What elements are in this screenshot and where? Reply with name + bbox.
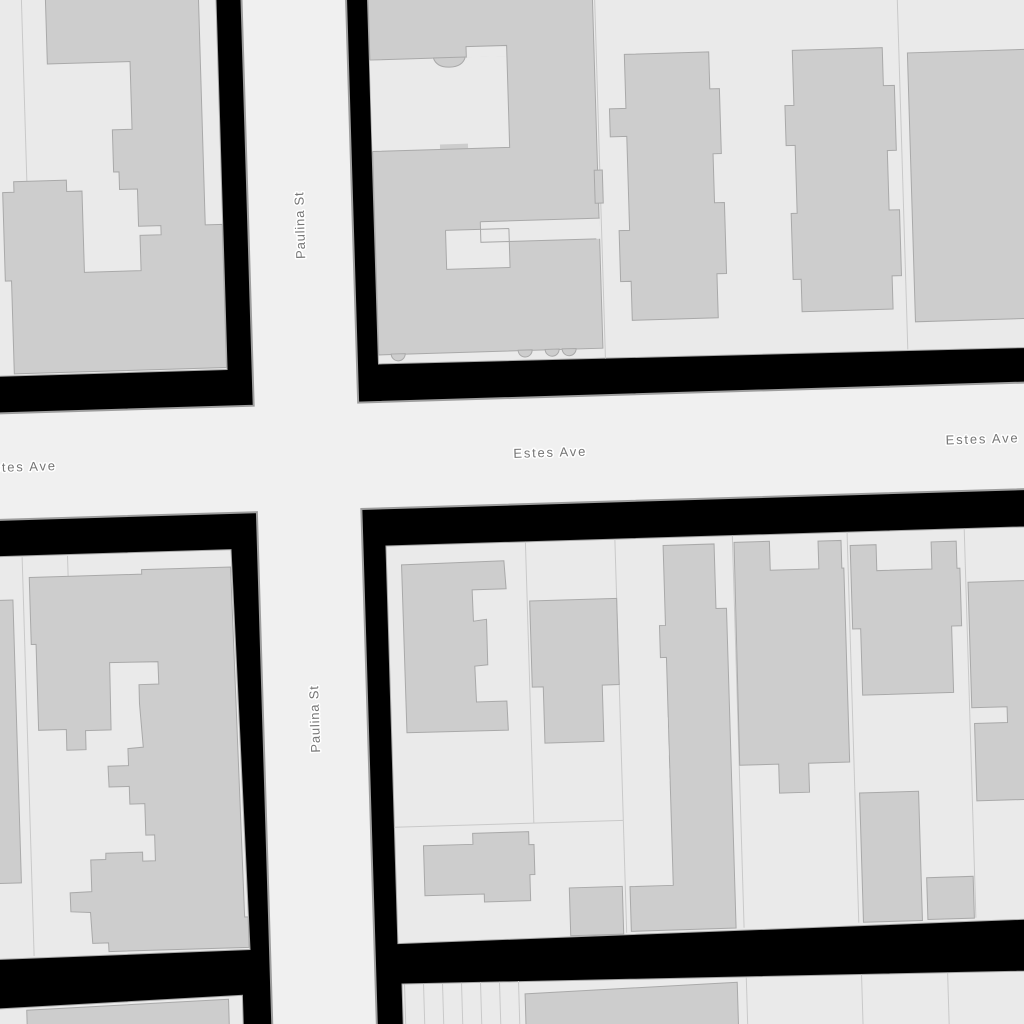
svg-text:Estes Ave: Estes Ave	[0, 458, 57, 475]
svg-text:Estes Ave: Estes Ave	[513, 444, 587, 461]
svg-text:Estes Ave: Estes Ave	[945, 430, 1019, 447]
svg-text:Paulina St: Paulina St	[291, 191, 308, 259]
svg-text:Paulina St: Paulina St	[306, 685, 323, 753]
